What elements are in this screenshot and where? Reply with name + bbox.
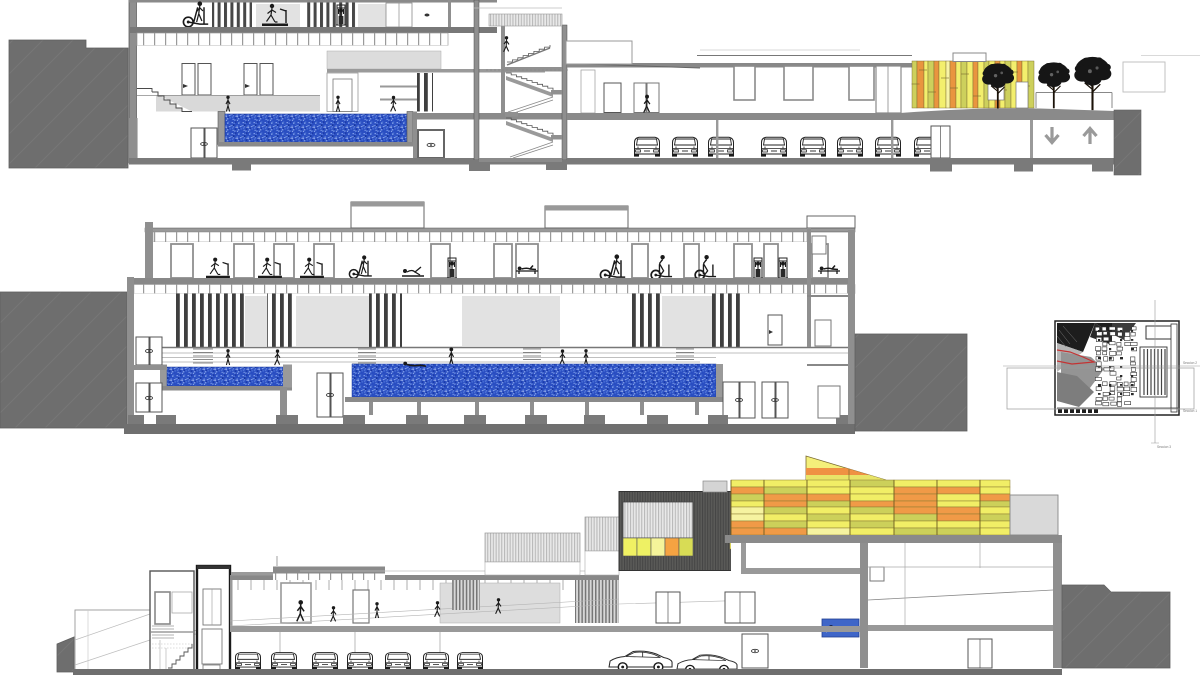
svg-text:Seccion 3: Seccion 3 [1157, 445, 1171, 449]
svg-text:Seccion 2: Seccion 2 [1183, 361, 1197, 365]
svg-text:Seccion 1: Seccion 1 [1183, 409, 1197, 413]
